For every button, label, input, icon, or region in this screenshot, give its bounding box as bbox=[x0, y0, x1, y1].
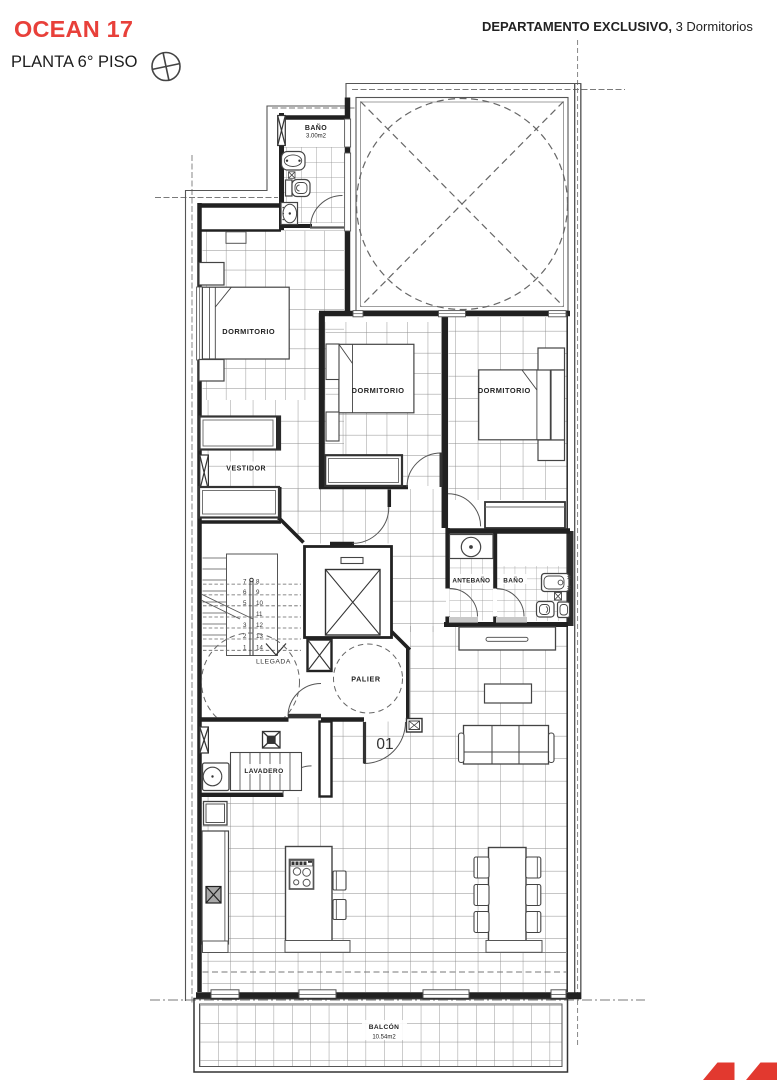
svg-text:BALCÓN: BALCÓN bbox=[369, 1022, 400, 1031]
svg-text:01: 01 bbox=[376, 736, 393, 753]
svg-text:12: 12 bbox=[256, 622, 263, 629]
svg-text:VESTIDOR: VESTIDOR bbox=[226, 466, 266, 473]
svg-text:DORMITORIO: DORMITORIO bbox=[222, 327, 275, 336]
svg-text:1: 1 bbox=[243, 645, 247, 652]
svg-text:DORMITORIO: DORMITORIO bbox=[478, 386, 531, 395]
svg-text:7: 7 bbox=[243, 578, 247, 585]
svg-text:DORMITORIO: DORMITORIO bbox=[352, 386, 405, 395]
svg-text:ANTEBAÑO: ANTEBAÑO bbox=[452, 575, 490, 584]
svg-text:LAVADERO: LAVADERO bbox=[244, 768, 283, 775]
svg-text:PALIER: PALIER bbox=[351, 675, 381, 684]
svg-text:BAÑO: BAÑO bbox=[503, 575, 523, 584]
svg-text:PLANTA 6° PISO: PLANTA 6° PISO bbox=[11, 53, 138, 71]
svg-text:11: 11 bbox=[256, 611, 263, 618]
svg-text:OCEAN 17: OCEAN 17 bbox=[14, 16, 133, 42]
svg-text:3: 3 bbox=[243, 622, 247, 629]
svg-text:6: 6 bbox=[243, 589, 247, 596]
svg-text:14: 14 bbox=[256, 645, 263, 652]
svg-text:2: 2 bbox=[243, 633, 247, 640]
svg-text:10.54m2: 10.54m2 bbox=[372, 1035, 396, 1041]
svg-text:9: 9 bbox=[256, 589, 260, 596]
svg-text:8: 8 bbox=[256, 578, 260, 585]
svg-text:BAÑO: BAÑO bbox=[305, 123, 327, 132]
svg-text:5: 5 bbox=[243, 600, 247, 607]
svg-text:3.00m2: 3.00m2 bbox=[306, 134, 327, 140]
svg-text:DEPARTAMENTO EXCLUSIVO, 3 Dorm: DEPARTAMENTO EXCLUSIVO, 3 Dormitorios bbox=[482, 19, 753, 34]
svg-text:10: 10 bbox=[256, 600, 263, 607]
svg-text:LLEGADA: LLEGADA bbox=[256, 659, 291, 666]
